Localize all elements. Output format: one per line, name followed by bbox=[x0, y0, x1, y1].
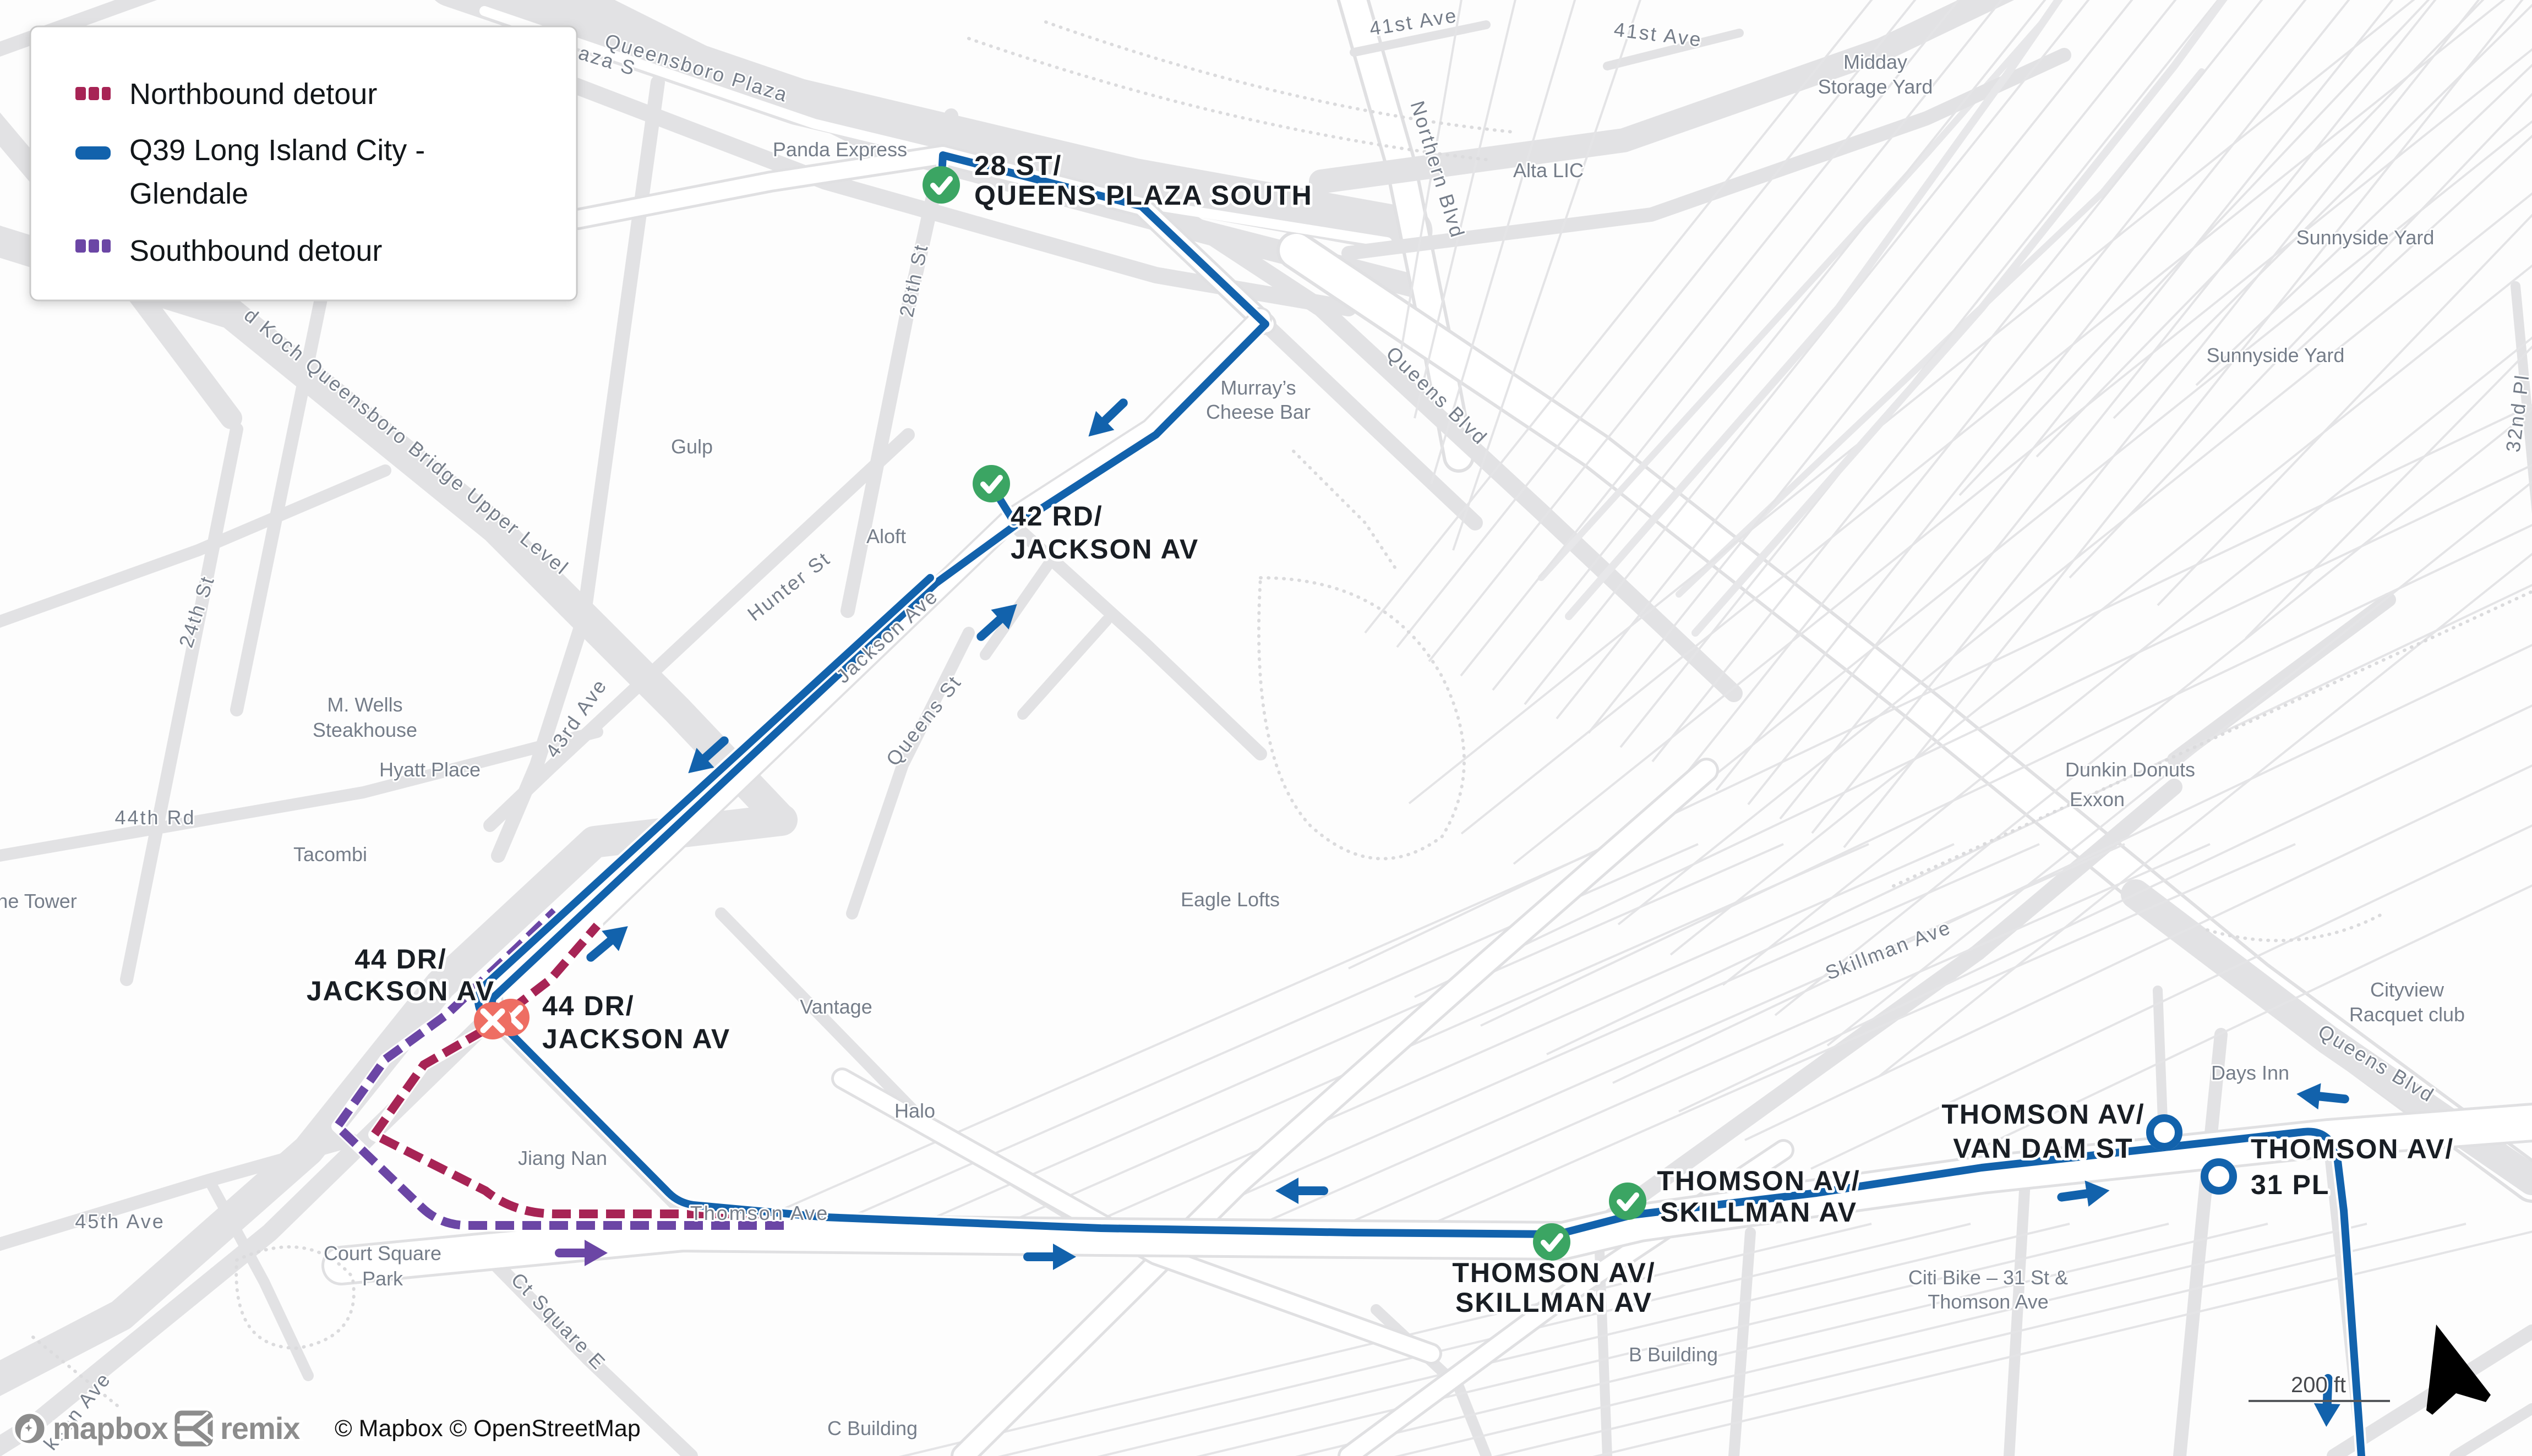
svg-text:44 DR/: 44 DR/ bbox=[542, 990, 635, 1021]
svg-text:Exxon: Exxon bbox=[2070, 788, 2125, 811]
svg-text:44th Rd: 44th Rd bbox=[114, 806, 195, 829]
svg-text:Jiang Nan: Jiang Nan bbox=[518, 1147, 607, 1169]
svg-text:Tacombi: Tacombi bbox=[293, 843, 367, 866]
svg-text:Vantage: Vantage bbox=[800, 995, 872, 1018]
svg-text:Steakhouse: Steakhouse bbox=[313, 719, 417, 741]
svg-text:JACKSON AV: JACKSON AV bbox=[307, 976, 495, 1006]
svg-text:Citi Bike – 31 St &: Citi Bike – 31 St & bbox=[1908, 1266, 2068, 1289]
svg-text:Thomson Ave: Thomson Ave bbox=[1928, 1290, 2048, 1313]
svg-text:Q39 Long Island City -: Q39 Long Island City - bbox=[129, 134, 425, 167]
svg-text:45th Ave: 45th Ave bbox=[75, 1210, 165, 1233]
svg-text:Halo: Halo bbox=[894, 1099, 935, 1122]
svg-text:JACKSON AV: JACKSON AV bbox=[1011, 534, 1199, 565]
svg-text:VAN DAM ST: VAN DAM ST bbox=[1953, 1133, 2133, 1164]
svg-text:Eagle Lofts: Eagle Lofts bbox=[1181, 888, 1280, 911]
svg-text:remix: remix bbox=[220, 1411, 300, 1446]
svg-text:Alta LIC: Alta LIC bbox=[1513, 159, 1584, 182]
svg-text:Court Square: Court Square bbox=[324, 1242, 441, 1265]
svg-text:42 RD/: 42 RD/ bbox=[1011, 501, 1103, 532]
svg-text:Aloft: Aloft bbox=[866, 525, 906, 548]
svg-text:QUEENS PLAZA SOUTH: QUEENS PLAZA SOUTH bbox=[974, 180, 1313, 211]
svg-text:Southbound detour: Southbound detour bbox=[129, 234, 382, 267]
svg-text:© Mapbox © OpenStreetMap: © Mapbox © OpenStreetMap bbox=[335, 1415, 641, 1442]
svg-text:B Building: B Building bbox=[1629, 1343, 1718, 1366]
svg-text:Days Inn: Days Inn bbox=[2211, 1061, 2289, 1084]
svg-text:THOMSON AV/: THOMSON AV/ bbox=[1941, 1099, 2144, 1130]
svg-text:Sunnyside Yard: Sunnyside Yard bbox=[2207, 344, 2345, 366]
svg-text:Glendale: Glendale bbox=[129, 177, 248, 210]
svg-text:Cheese Bar: Cheese Bar bbox=[1206, 401, 1311, 423]
svg-text:Racquet club: Racquet club bbox=[2349, 1003, 2465, 1026]
svg-text:Murray’s: Murray’s bbox=[1220, 376, 1296, 399]
svg-text:C Building: C Building bbox=[827, 1417, 918, 1439]
svg-text:Panda Express: Panda Express bbox=[773, 138, 907, 161]
svg-text:Gulp: Gulp bbox=[671, 435, 713, 458]
svg-text:44 DR/: 44 DR/ bbox=[354, 944, 447, 975]
svg-text:M. Wells: M. Wells bbox=[327, 693, 402, 716]
svg-text:THOMSON AV/: THOMSON AV/ bbox=[1657, 1165, 1860, 1196]
svg-text:Thomson Ave: Thomson Ave bbox=[690, 1202, 829, 1224]
svg-text:THOMSON AV/: THOMSON AV/ bbox=[1452, 1257, 1655, 1288]
svg-text:Hyatt Place: Hyatt Place bbox=[379, 758, 481, 781]
svg-text:JACKSON AV: JACKSON AV bbox=[542, 1023, 730, 1054]
svg-text:mapbox: mapbox bbox=[53, 1411, 168, 1446]
svg-text:Midday: Midday bbox=[1843, 51, 1907, 73]
svg-text:Sunnyside Yard: Sunnyside Yard bbox=[2296, 226, 2435, 249]
svg-text:200 ft: 200 ft bbox=[2291, 1373, 2346, 1397]
svg-text:Northbound detour: Northbound detour bbox=[129, 78, 377, 111]
svg-text:SKILLMAN AV: SKILLMAN AV bbox=[1660, 1197, 1857, 1228]
svg-text:Cityview: Cityview bbox=[2370, 978, 2444, 1001]
svg-text:Storage Yard: Storage Yard bbox=[1818, 75, 1933, 98]
svg-text:Dunkin Donuts: Dunkin Donuts bbox=[2065, 758, 2195, 781]
svg-text:Park: Park bbox=[362, 1267, 403, 1290]
svg-text:THOMSON AV/: THOMSON AV/ bbox=[2251, 1134, 2454, 1164]
svg-text:28 ST/: 28 ST/ bbox=[974, 150, 1062, 181]
svg-text:yline Tower: yline Tower bbox=[0, 890, 77, 912]
svg-text:31 PL: 31 PL bbox=[2251, 1169, 2329, 1200]
svg-text:SKILLMAN AV: SKILLMAN AV bbox=[1455, 1287, 1652, 1318]
